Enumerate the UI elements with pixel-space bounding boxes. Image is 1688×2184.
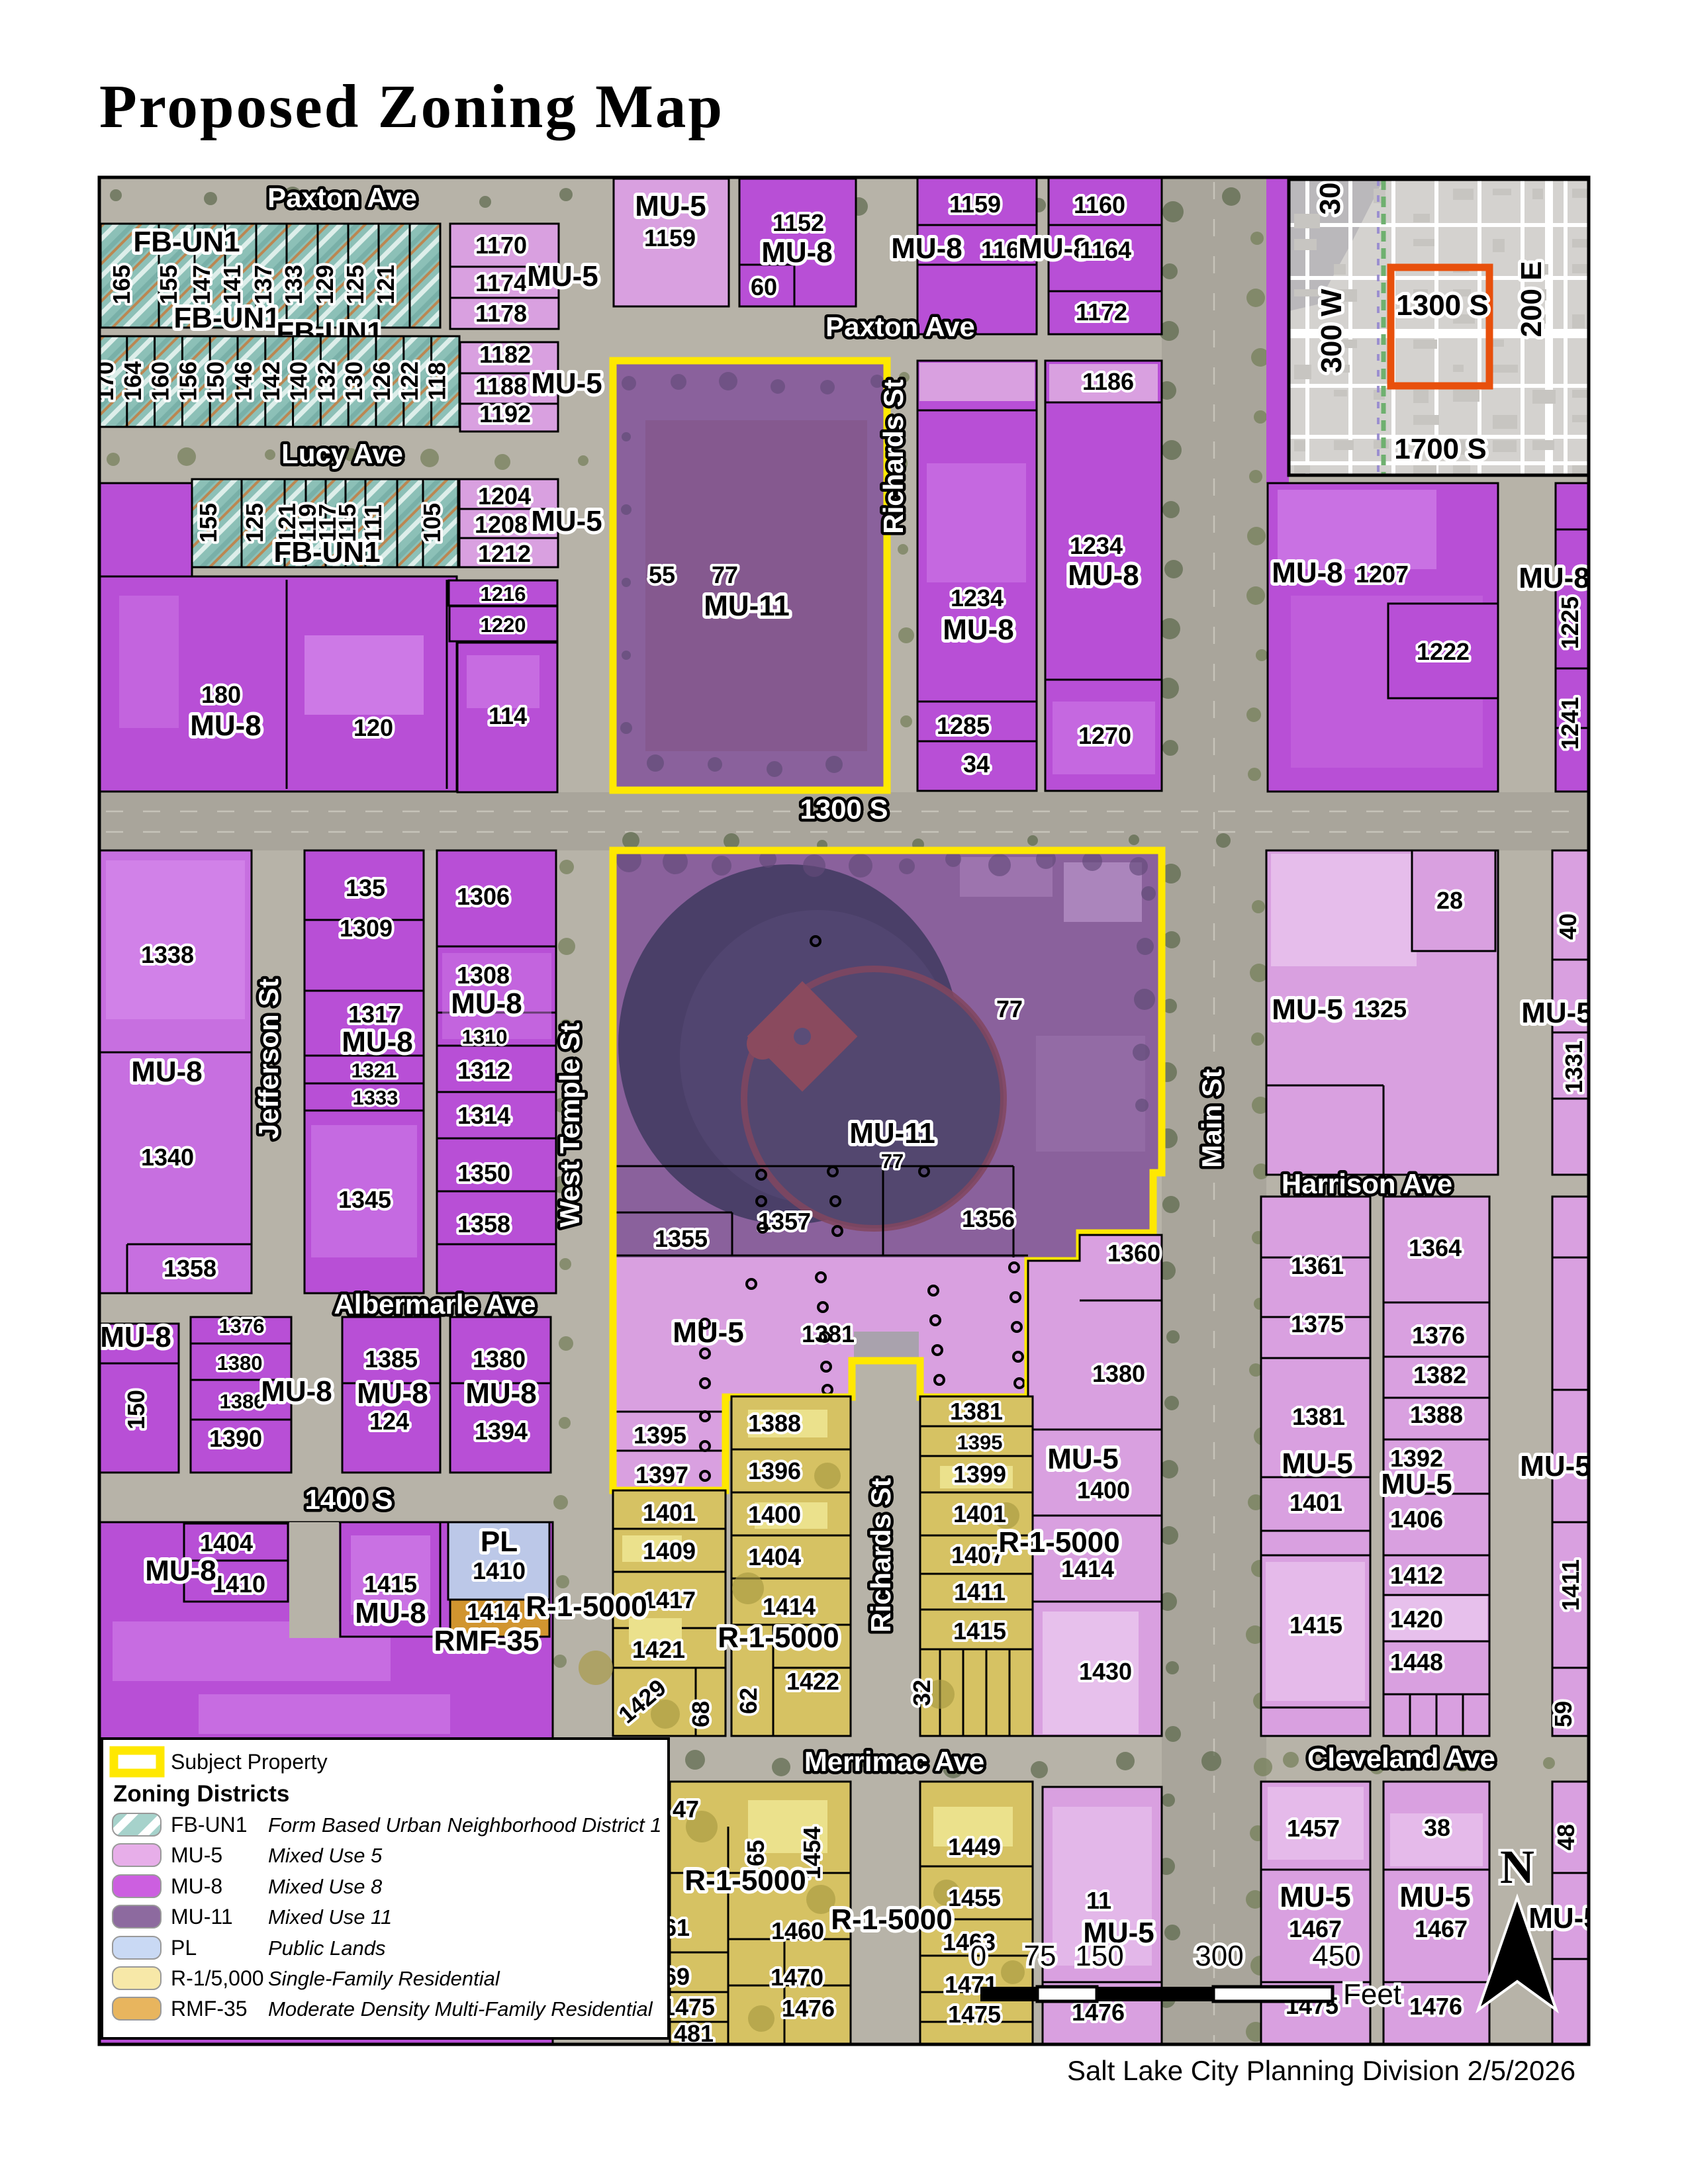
svg-text:Paxton Ave: Paxton Ave — [825, 311, 975, 342]
svg-text:MU-8: MU-8 — [1519, 562, 1590, 594]
svg-text:MU-8: MU-8 — [261, 1375, 332, 1408]
svg-text:1422: 1422 — [786, 1668, 839, 1695]
svg-text:Merrimac Ave: Merrimac Ave — [804, 1746, 984, 1777]
svg-text:1216: 1216 — [481, 582, 526, 606]
svg-text:300 W: 300 W — [1315, 289, 1348, 373]
svg-text:1411: 1411 — [954, 1578, 1006, 1606]
svg-text:Mixed Use 8: Mixed Use 8 — [268, 1875, 383, 1898]
svg-text:77: 77 — [712, 561, 738, 588]
svg-text:1394: 1394 — [475, 1418, 528, 1445]
svg-text:Feet: Feet — [1343, 1978, 1401, 2011]
svg-text:77: 77 — [996, 995, 1023, 1023]
svg-text:MU-5: MU-5 — [531, 367, 602, 400]
svg-text:Cleveland Ave: Cleveland Ave — [1307, 1743, 1495, 1774]
svg-text:1310: 1310 — [462, 1025, 508, 1048]
svg-text:1300 S: 1300 S — [800, 794, 888, 825]
svg-text:150: 150 — [1075, 1940, 1123, 1972]
svg-text:1285: 1285 — [937, 712, 990, 739]
svg-text:1410: 1410 — [212, 1570, 265, 1598]
svg-text:1404: 1404 — [200, 1529, 253, 1557]
svg-text:1308: 1308 — [457, 962, 510, 989]
svg-text:R-1/5,000: R-1/5,000 — [171, 1966, 264, 1990]
svg-text:1225: 1225 — [1556, 596, 1583, 649]
svg-text:68: 68 — [687, 1701, 714, 1727]
svg-text:1172: 1172 — [1076, 298, 1127, 326]
svg-text:11: 11 — [1086, 1887, 1111, 1914]
svg-text:55: 55 — [649, 561, 675, 588]
svg-text:135: 135 — [346, 874, 385, 901]
svg-text:160: 160 — [147, 361, 174, 401]
svg-text:MU-8: MU-8 — [1018, 232, 1090, 265]
svg-text:1159: 1159 — [949, 191, 1001, 218]
svg-text:1338: 1338 — [141, 941, 194, 968]
svg-text:1415: 1415 — [1289, 1612, 1342, 1639]
svg-text:1449: 1449 — [948, 1833, 1001, 1860]
svg-text:450: 450 — [1312, 1940, 1360, 1972]
svg-text:MU-8: MU-8 — [451, 987, 522, 1020]
svg-text:1188: 1188 — [475, 373, 527, 400]
svg-text:1360: 1360 — [1107, 1240, 1160, 1267]
svg-text:MU-8: MU-8 — [1068, 559, 1139, 592]
svg-text:164: 164 — [119, 361, 146, 401]
svg-text:1364: 1364 — [1409, 1234, 1462, 1261]
svg-text:32: 32 — [908, 1680, 935, 1706]
svg-text:1381: 1381 — [950, 1398, 1003, 1425]
svg-text:1192: 1192 — [479, 400, 531, 428]
svg-text:Richards St: Richards St — [865, 1478, 896, 1632]
svg-text:146: 146 — [230, 361, 257, 401]
svg-text:1401: 1401 — [953, 1500, 1006, 1527]
svg-text:MU-5: MU-5 — [1272, 993, 1343, 1026]
svg-text:MU-8: MU-8 — [100, 1321, 171, 1353]
svg-text:MU-8: MU-8 — [761, 236, 833, 269]
svg-text:118: 118 — [424, 362, 451, 400]
svg-text:1380: 1380 — [1092, 1360, 1145, 1387]
svg-text:1407: 1407 — [951, 1541, 1004, 1569]
svg-text:147: 147 — [188, 265, 215, 304]
svg-text:30: 30 — [1314, 183, 1346, 215]
svg-text:RMF-35: RMF-35 — [434, 1625, 539, 1657]
svg-text:1321: 1321 — [352, 1059, 397, 1082]
svg-text:1222: 1222 — [1417, 638, 1470, 665]
svg-text:1388: 1388 — [1410, 1401, 1463, 1428]
svg-text:1401: 1401 — [643, 1499, 696, 1526]
svg-text:1380: 1380 — [473, 1345, 526, 1373]
svg-text:1412: 1412 — [1390, 1562, 1443, 1589]
svg-text:1164: 1164 — [1080, 236, 1131, 263]
svg-text:1220: 1220 — [481, 614, 526, 637]
svg-text:1178: 1178 — [475, 300, 527, 327]
svg-text:48: 48 — [1552, 1824, 1579, 1850]
svg-text:MU-11: MU-11 — [704, 590, 790, 622]
svg-text:MU-5: MU-5 — [1381, 1468, 1452, 1500]
svg-text:60: 60 — [751, 273, 777, 300]
svg-text:34: 34 — [963, 751, 990, 778]
svg-text:MU-5: MU-5 — [1282, 1447, 1353, 1480]
svg-text:1160: 1160 — [1074, 191, 1125, 218]
svg-text:1186: 1186 — [1082, 368, 1134, 395]
svg-text:114: 114 — [489, 702, 527, 729]
svg-text:130: 130 — [340, 361, 367, 401]
svg-text:MU-5: MU-5 — [635, 190, 706, 222]
svg-text:1414: 1414 — [467, 1598, 520, 1625]
svg-text:1420: 1420 — [1390, 1606, 1443, 1633]
svg-text:155: 155 — [155, 265, 182, 304]
svg-text:1411: 1411 — [1557, 1559, 1584, 1611]
svg-text:156: 156 — [174, 361, 201, 401]
svg-text:1306: 1306 — [457, 883, 510, 910]
svg-text:MU-5: MU-5 — [171, 1843, 222, 1867]
svg-text:1396: 1396 — [748, 1457, 801, 1484]
svg-text:1212: 1212 — [478, 540, 531, 567]
svg-text:300: 300 — [1195, 1940, 1243, 1972]
svg-text:1358: 1358 — [164, 1255, 216, 1282]
svg-text:1317: 1317 — [348, 1001, 401, 1028]
svg-text:155: 155 — [195, 503, 222, 543]
svg-text:1358: 1358 — [457, 1210, 510, 1238]
svg-text:MU-5: MU-5 — [1047, 1443, 1119, 1475]
svg-text:MU-5: MU-5 — [1520, 1450, 1591, 1482]
svg-text:MU-5: MU-5 — [531, 505, 602, 537]
svg-text:Lucy Ave: Lucy Ave — [281, 438, 403, 469]
svg-text:1208: 1208 — [475, 511, 528, 538]
svg-text:1345: 1345 — [338, 1186, 391, 1213]
svg-text:MU-8: MU-8 — [190, 709, 261, 742]
svg-text:1475: 1475 — [948, 2001, 1001, 2028]
svg-text:R-1-5000: R-1-5000 — [998, 1526, 1119, 1559]
svg-text:1204: 1204 — [478, 482, 531, 510]
svg-text:MU-8: MU-8 — [891, 232, 962, 265]
svg-text:MU-11: MU-11 — [171, 1905, 233, 1929]
svg-text:1300 S: 1300 S — [1396, 289, 1488, 322]
svg-text:1241: 1241 — [1556, 697, 1583, 750]
svg-text:47: 47 — [673, 1796, 699, 1823]
svg-text:1159: 1159 — [644, 224, 696, 251]
svg-text:1388: 1388 — [748, 1410, 801, 1437]
svg-text:1463: 1463 — [943, 1929, 996, 1956]
svg-text:1404: 1404 — [748, 1543, 801, 1570]
svg-text:129: 129 — [311, 265, 338, 304]
svg-text:38: 38 — [1424, 1814, 1450, 1841]
svg-text:MU-5: MU-5 — [1399, 1881, 1471, 1913]
svg-text:1409: 1409 — [643, 1537, 696, 1565]
svg-text:142: 142 — [258, 361, 285, 401]
svg-text:1376: 1376 — [219, 1314, 265, 1338]
svg-text:MU-8: MU-8 — [171, 1874, 222, 1898]
svg-text:Zoning Districts: Zoning Districts — [113, 1781, 289, 1807]
svg-text:1415: 1415 — [953, 1617, 1006, 1645]
svg-text:MU-8: MU-8 — [355, 1597, 426, 1629]
svg-text:Moderate Density Multi-Family: Moderate Density Multi-Family Residentia… — [268, 1997, 653, 2021]
svg-text:122: 122 — [396, 361, 423, 401]
svg-text:1400: 1400 — [748, 1501, 801, 1528]
svg-text:MU-11: MU-11 — [849, 1117, 935, 1150]
svg-text:MU-8: MU-8 — [145, 1555, 216, 1587]
svg-text:1325: 1325 — [1354, 995, 1407, 1023]
svg-text:1421: 1421 — [632, 1636, 685, 1663]
svg-text:1174: 1174 — [475, 269, 527, 296]
svg-text:1476: 1476 — [782, 1995, 835, 2022]
svg-text:1470: 1470 — [771, 1964, 823, 1991]
svg-text:1400 S: 1400 S — [305, 1484, 393, 1515]
svg-text:1355: 1355 — [655, 1225, 708, 1252]
svg-text:1414: 1414 — [1061, 1555, 1114, 1582]
svg-text:65: 65 — [742, 1840, 769, 1866]
svg-text:133: 133 — [280, 265, 307, 304]
svg-text:Jefferson St: Jefferson St — [253, 979, 284, 1140]
svg-text:120: 120 — [353, 714, 393, 741]
svg-text:1414: 1414 — [763, 1593, 816, 1620]
svg-text:1700 S: 1700 S — [1394, 433, 1486, 465]
svg-text:R-1-5000: R-1-5000 — [526, 1590, 647, 1623]
svg-text:165: 165 — [108, 265, 135, 304]
svg-text:R-1-5000: R-1-5000 — [831, 1903, 952, 1936]
svg-text:1401: 1401 — [1289, 1489, 1342, 1516]
svg-text:Paxton Ave: Paxton Ave — [267, 182, 417, 213]
svg-text:137: 137 — [250, 265, 277, 304]
svg-text:1390: 1390 — [209, 1425, 262, 1452]
svg-text:Albermarle Ave: Albermarle Ave — [334, 1289, 536, 1320]
svg-text:FB-UN1: FB-UN1 — [133, 226, 240, 258]
svg-text:1182: 1182 — [479, 341, 531, 368]
svg-text:1312: 1312 — [457, 1057, 510, 1084]
svg-text:FB-UN1: FB-UN1 — [273, 536, 380, 569]
svg-text:1400: 1400 — [1077, 1477, 1130, 1504]
svg-text:Public Lands: Public Lands — [268, 1936, 386, 1960]
svg-text:105: 105 — [418, 503, 445, 543]
svg-text:1399: 1399 — [953, 1461, 1006, 1488]
svg-text:1395: 1395 — [957, 1431, 1003, 1454]
svg-text:1460: 1460 — [771, 1917, 824, 1944]
svg-text:1234: 1234 — [1070, 532, 1123, 559]
svg-text:N: N — [1500, 1841, 1534, 1893]
svg-text:1350: 1350 — [457, 1160, 510, 1187]
svg-text:RMF-35: RMF-35 — [171, 1997, 248, 2021]
svg-text:40: 40 — [1554, 913, 1581, 940]
svg-text:Main St: Main St — [1196, 1069, 1227, 1167]
svg-text:28: 28 — [1436, 887, 1463, 914]
svg-text:Mixed Use 11: Mixed Use 11 — [268, 1905, 392, 1929]
svg-text:PL: PL — [481, 1525, 518, 1558]
svg-text:1340: 1340 — [141, 1144, 194, 1171]
svg-text:West Temple St: West Temple St — [554, 1023, 585, 1228]
svg-text:141: 141 — [218, 265, 246, 304]
svg-text:MU-8: MU-8 — [465, 1377, 537, 1410]
svg-text:1356: 1356 — [962, 1205, 1015, 1232]
svg-text:75: 75 — [1024, 1940, 1056, 1972]
svg-text:MU-5: MU-5 — [527, 260, 598, 293]
svg-text:MU-8: MU-8 — [342, 1026, 413, 1058]
svg-text:1410: 1410 — [473, 1557, 526, 1584]
svg-text:MU-8: MU-8 — [943, 614, 1014, 646]
svg-text:1331: 1331 — [1560, 1040, 1587, 1093]
svg-text:1170: 1170 — [475, 232, 527, 259]
svg-text:Single-Family Residential: Single-Family Residential — [268, 1967, 500, 1990]
svg-text:FB-UN1: FB-UN1 — [171, 1813, 248, 1837]
svg-text:1417: 1417 — [643, 1586, 696, 1614]
svg-text:1455: 1455 — [948, 1884, 1001, 1911]
svg-text:126: 126 — [368, 361, 395, 401]
svg-text:1448: 1448 — [1390, 1649, 1443, 1676]
svg-text:1382: 1382 — [1413, 1361, 1466, 1388]
svg-text:MU-8: MU-8 — [131, 1056, 203, 1088]
svg-text:PL: PL — [171, 1936, 197, 1960]
svg-text:1152: 1152 — [773, 209, 824, 236]
svg-text:1333: 1333 — [353, 1086, 399, 1109]
svg-text:R-1-5000: R-1-5000 — [684, 1864, 806, 1897]
svg-text:Proposed Zoning Map: Proposed Zoning Map — [99, 73, 724, 141]
svg-text:180: 180 — [201, 681, 241, 708]
svg-text:MU-8: MU-8 — [357, 1377, 428, 1410]
svg-text:200 E: 200 E — [1515, 261, 1548, 338]
svg-text:1476: 1476 — [1409, 1993, 1462, 2020]
svg-text:1406: 1406 — [1390, 1506, 1443, 1533]
svg-text:MU-8: MU-8 — [1272, 557, 1343, 589]
svg-text:150: 150 — [202, 361, 229, 401]
svg-text:1376: 1376 — [1412, 1322, 1465, 1349]
svg-text:132: 132 — [312, 361, 340, 401]
svg-text:Subject Property: Subject Property — [171, 1750, 328, 1774]
svg-text:1270: 1270 — [1078, 722, 1131, 749]
svg-text:62: 62 — [735, 1688, 762, 1714]
svg-text:1375: 1375 — [1291, 1310, 1344, 1338]
svg-text:1467: 1467 — [1415, 1915, 1468, 1942]
svg-text:1385: 1385 — [365, 1345, 418, 1373]
svg-text:1381: 1381 — [1292, 1403, 1345, 1430]
svg-text:Richards St: Richards St — [878, 379, 909, 533]
svg-text:1457: 1457 — [1287, 1815, 1340, 1842]
svg-text:Mixed Use 5: Mixed Use 5 — [268, 1844, 383, 1867]
svg-text:125: 125 — [241, 503, 268, 543]
svg-text:Salt Lake City Planning Divisi: Salt Lake City Planning Division 2/5/202… — [1067, 2055, 1575, 2086]
svg-text:150: 150 — [122, 1390, 150, 1430]
svg-text:1380: 1380 — [217, 1351, 263, 1375]
svg-text:77: 77 — [881, 1150, 904, 1173]
svg-text:MU-5: MU-5 — [1280, 1881, 1351, 1913]
svg-text:121: 121 — [372, 265, 399, 304]
svg-text:1397: 1397 — [635, 1461, 688, 1488]
svg-text:125: 125 — [342, 265, 369, 304]
svg-text:Harrison Ave: Harrison Ave — [1282, 1168, 1452, 1199]
svg-text:R-1-5000: R-1-5000 — [718, 1621, 839, 1654]
svg-text:0: 0 — [970, 1940, 986, 1972]
svg-text:1395: 1395 — [633, 1422, 686, 1449]
svg-text:124: 124 — [369, 1408, 409, 1435]
svg-text:FB-UN1: FB-UN1 — [173, 302, 280, 334]
svg-text:1386: 1386 — [220, 1390, 265, 1413]
svg-text:1234: 1234 — [951, 584, 1004, 612]
svg-text:1430: 1430 — [1079, 1658, 1132, 1685]
svg-text:59: 59 — [1550, 1701, 1577, 1727]
svg-text:Form Based Urban Neighborhood: Form Based Urban Neighborhood District 1 — [268, 1813, 661, 1837]
svg-text:MU-5: MU-5 — [1521, 997, 1593, 1029]
svg-text:1309: 1309 — [340, 915, 393, 942]
svg-text:1467: 1467 — [1289, 1915, 1342, 1942]
svg-text:1314: 1314 — [457, 1102, 510, 1129]
svg-text:140: 140 — [285, 361, 312, 401]
svg-text:1415: 1415 — [364, 1570, 417, 1598]
svg-text:1207: 1207 — [1356, 561, 1409, 588]
svg-text:1361: 1361 — [1291, 1252, 1344, 1279]
